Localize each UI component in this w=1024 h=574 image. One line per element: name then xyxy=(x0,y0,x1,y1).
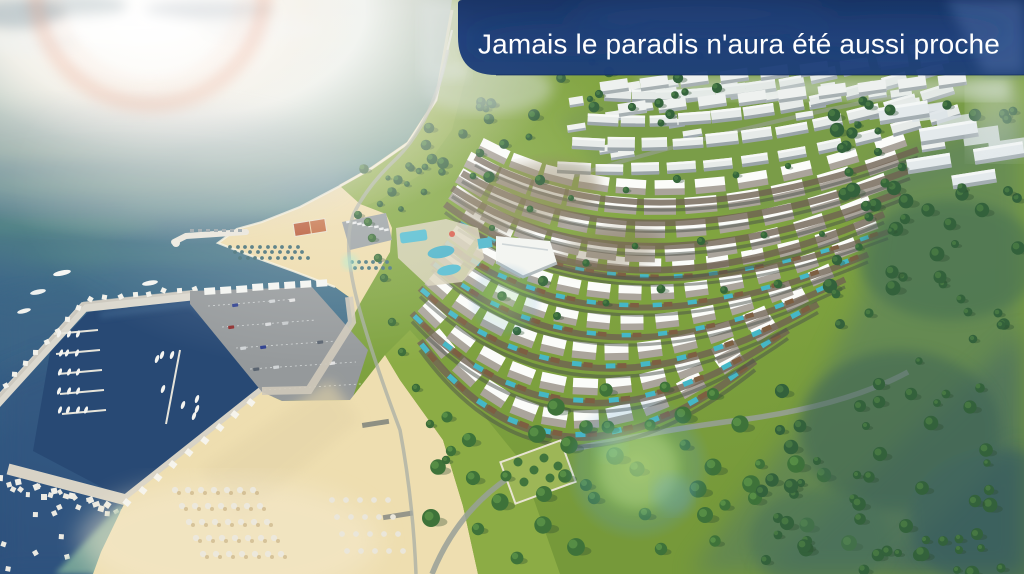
svg-text:Jamais le paradis n'aura été a: Jamais le paradis n'aura été aussi proch… xyxy=(478,29,1000,60)
